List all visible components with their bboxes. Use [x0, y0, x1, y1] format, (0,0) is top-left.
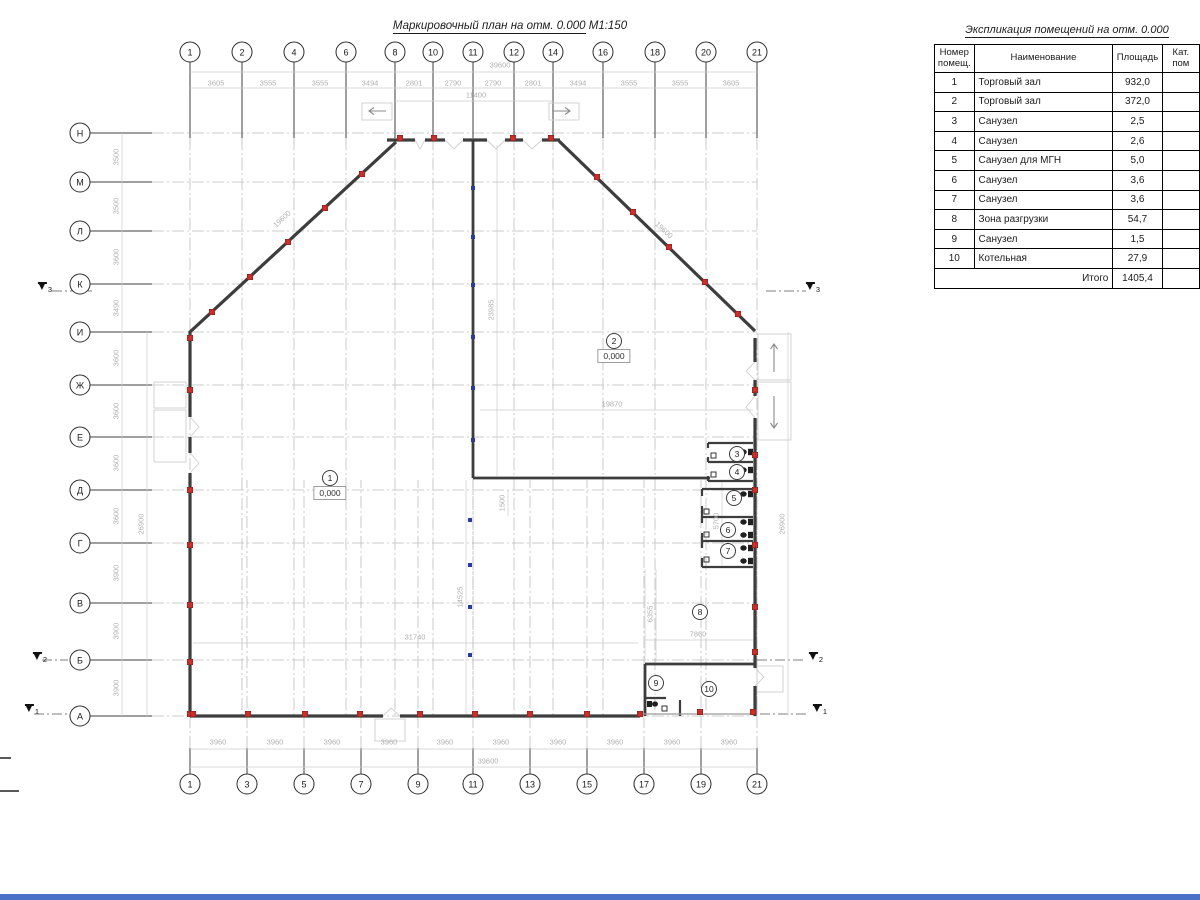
section-mark-label: 3: [816, 285, 820, 294]
room-number-4: 4: [729, 464, 745, 480]
red-wall-marker: [753, 488, 758, 493]
dim-label: 19600: [271, 209, 292, 230]
axis-bubble-left-Н: Н: [70, 123, 91, 144]
sheet-bottom-accent-bar: [0, 894, 1200, 900]
dim-label: 3605: [208, 79, 225, 88]
room-number-7: 7: [720, 543, 736, 559]
cell-c-cat: [1162, 229, 1199, 249]
section-flag-icon: [809, 652, 818, 661]
dim-label: 3555: [672, 79, 689, 88]
dim-label: 39600: [478, 757, 499, 766]
red-wall-marker: [303, 712, 308, 717]
table-row-room-6: 6Санузел3,6: [935, 170, 1200, 190]
axis-bubble-left-Г: Г: [70, 533, 91, 554]
section-flag-icon: [33, 652, 42, 661]
dim-label: 3600: [112, 249, 121, 266]
cell-c-num: 1: [935, 73, 975, 93]
dim-label: 26900: [778, 514, 787, 535]
cell-c-area: 5,0: [1113, 151, 1162, 171]
room-number-6: 6: [720, 522, 736, 538]
red-wall-marker: [188, 336, 193, 341]
room-number-2: 2: [606, 333, 622, 349]
dim-label: 3494: [570, 79, 587, 88]
blue-column-marker: [468, 518, 472, 522]
axis-bubble-top-4: 4: [284, 42, 305, 63]
dim-label: 7860: [690, 630, 707, 639]
cell-c-cat: [1162, 73, 1199, 93]
axis-bubble-left-Е: Е: [70, 427, 91, 448]
red-wall-marker: [638, 712, 643, 717]
dim-label: 3960: [664, 738, 681, 747]
dim-label: 3600: [112, 455, 121, 472]
cell-c-cat: [1162, 92, 1199, 112]
table-row-room-8: 8Зона разгрузки54,7: [935, 210, 1200, 230]
section-flag-icon: [25, 704, 34, 713]
cell-c-name: Санузел: [974, 190, 1113, 210]
cell-c-name: Санузел для МГН: [974, 151, 1113, 171]
cell-c-num: 10: [935, 249, 975, 269]
cell-c-name: Зона разгрузки: [974, 210, 1113, 230]
table-row-room-10: 10Котельная27,9: [935, 249, 1200, 269]
dim-label: 19870: [602, 400, 623, 409]
axis-bubble-left-А: А: [70, 706, 91, 727]
dim-label: 3960: [607, 738, 624, 747]
col-header-name: Наименование: [974, 45, 1113, 73]
dim-label: 3600: [112, 350, 121, 367]
axis-bubble-bottom-3: 3: [237, 774, 258, 795]
room-number-8: 8: [692, 604, 708, 620]
axis-bubble-top-14: 14: [543, 42, 564, 63]
cell-c-num: 2: [935, 92, 975, 112]
drawing-scale: М1:150: [589, 20, 627, 32]
dim-label: 31740: [405, 633, 426, 642]
axis-bubble-top-11: 11: [463, 42, 484, 63]
blue-column-marker: [468, 653, 472, 657]
dim-label: 3600: [112, 403, 121, 420]
dim-label: 3960: [267, 738, 284, 747]
dim-label: 3960: [210, 738, 227, 747]
dim-label: 5700: [712, 513, 721, 530]
axis-bubble-bottom-17: 17: [634, 774, 655, 795]
dim-label: 3900: [112, 565, 121, 582]
room-number-5: 5: [726, 490, 742, 506]
red-wall-marker: [753, 543, 758, 548]
red-wall-marker: [667, 245, 672, 250]
blue-column-marker: [471, 386, 475, 390]
axis-bubble-left-В: В: [70, 593, 91, 614]
red-wall-marker: [188, 660, 193, 665]
cell-c-area: 2,5: [1113, 112, 1162, 132]
axis-bubble-top-8: 8: [385, 42, 406, 63]
level-mark-room-2: 0,000: [597, 349, 630, 363]
dim-label: 2801: [406, 79, 423, 88]
dim-label: 3900: [112, 623, 121, 640]
cell-c-cat: [1162, 249, 1199, 269]
red-wall-marker: [549, 136, 554, 141]
dim-label: 11400: [466, 91, 486, 100]
dim-label: 19600: [653, 220, 674, 241]
cell-c-area: 2,6: [1113, 131, 1162, 151]
cell-c-cat: [1162, 131, 1199, 151]
section-mark-label: 1: [823, 707, 827, 716]
section-mark-3: 3: [806, 282, 820, 294]
cell-c-cat: [1162, 170, 1199, 190]
dim-label: 3494: [362, 79, 379, 88]
room-number-3: 3: [729, 446, 745, 462]
red-wall-marker: [751, 710, 756, 715]
axis-bubble-left-К: К: [70, 274, 91, 295]
red-wall-marker: [210, 310, 215, 315]
red-wall-marker: [753, 650, 758, 655]
red-wall-marker: [432, 136, 437, 141]
col-header-area: Площадь: [1113, 45, 1162, 73]
dim-label: 23985: [487, 300, 496, 321]
axis-bubble-bottom-9: 9: [408, 774, 429, 795]
cell-c-area: 3,6: [1113, 170, 1162, 190]
axis-bubble-top-6: 6: [336, 42, 357, 63]
total-label: Итого: [935, 268, 1113, 288]
blue-column-marker: [468, 563, 472, 567]
red-wall-marker: [246, 712, 251, 717]
blue-column-marker: [471, 438, 475, 442]
red-wall-marker: [188, 388, 193, 393]
table-row-room-7: 7Санузел3,6: [935, 190, 1200, 210]
cell-c-cat: [1162, 112, 1199, 132]
blue-column-marker: [468, 605, 472, 609]
dim-label: 3500: [112, 198, 121, 215]
blue-column-marker: [471, 335, 475, 339]
red-wall-marker: [248, 275, 253, 280]
table-row-room-4: 4Санузел2,6: [935, 131, 1200, 151]
red-wall-marker: [188, 543, 193, 548]
red-wall-marker: [703, 280, 708, 285]
red-wall-marker: [595, 175, 600, 180]
blue-column-marker: [471, 283, 475, 287]
dim-label: 3605: [723, 79, 740, 88]
axis-bubble-left-Ж: Ж: [70, 375, 91, 396]
red-wall-marker: [528, 712, 533, 717]
dim-label: 3500: [112, 149, 121, 166]
dim-label: 3555: [621, 79, 638, 88]
section-mark-1: 1: [25, 704, 39, 716]
table-row-room-3: 3Санузел2,5: [935, 112, 1200, 132]
table-row-room-2: 2Торговый зал372,0: [935, 92, 1200, 112]
axis-bubble-left-Б: Б: [70, 650, 91, 671]
dim-label: 3555: [260, 79, 277, 88]
room-schedule-table: Номер помещ. Наименование Площадь Кат. п…: [934, 44, 1200, 289]
cell-c-num: 6: [935, 170, 975, 190]
section-mark-2: 2: [809, 652, 823, 664]
axis-bubble-top-10: 10: [423, 42, 444, 63]
room-number-10: 10: [701, 681, 717, 697]
cell-c-area: 54,7: [1113, 210, 1162, 230]
dim-label: 2790: [485, 79, 502, 88]
red-wall-marker: [698, 710, 703, 715]
axis-bubble-left-Д: Д: [70, 480, 91, 501]
dim-label: 6355: [646, 606, 655, 623]
col-header-number: Номер помещ.: [935, 45, 975, 73]
axis-bubble-bottom-13: 13: [520, 774, 541, 795]
axis-bubble-left-И: И: [70, 322, 91, 343]
axis-bubble-top-16: 16: [593, 42, 614, 63]
axis-bubble-top-1: 1: [180, 42, 201, 63]
dim-label: 3960: [493, 738, 510, 747]
section-mark-label: 2: [43, 655, 47, 664]
dim-label: 26900: [137, 514, 146, 535]
dim-label: 3490: [112, 300, 121, 317]
axis-bubble-left-Л: Л: [70, 221, 91, 242]
dim-label: 3555: [312, 79, 329, 88]
section-mark-1: 1: [813, 704, 827, 716]
col-header-category: Кат. пом: [1162, 45, 1199, 73]
drawing-title: Маркировочный план на отм. 0.000 М1:150: [330, 20, 690, 32]
cell-c-area: 3,6: [1113, 190, 1162, 210]
level-mark-room-1: 0,000: [313, 486, 346, 500]
cell-c-num: 5: [935, 151, 975, 171]
red-wall-marker: [753, 388, 758, 393]
section-mark-3: 3: [38, 282, 52, 294]
axis-bubble-bottom-7: 7: [351, 774, 372, 795]
section-flag-icon: [806, 282, 815, 291]
axis-bubble-bottom-19: 19: [691, 774, 712, 795]
axis-bubble-bottom-1: 1: [180, 774, 201, 795]
section-mark-label: 1: [35, 707, 39, 716]
axis-bubble-left-М: М: [70, 172, 91, 193]
cell-c-name: Санузел: [974, 131, 1113, 151]
total-value: 1405,4: [1113, 268, 1162, 288]
cell-c-name: Санузел: [974, 112, 1113, 132]
cell-c-name: Торговый зал: [974, 73, 1113, 93]
cell-c-num: 9: [935, 229, 975, 249]
red-wall-marker: [753, 453, 758, 458]
blue-column-marker: [471, 235, 475, 239]
table-row-room-5: 5Санузел для МГН5,0: [935, 151, 1200, 171]
dim-label: 3960: [437, 738, 454, 747]
red-wall-marker: [736, 312, 741, 317]
cell-c-name: Санузел: [974, 170, 1113, 190]
axis-bubble-top-20: 20: [696, 42, 717, 63]
red-wall-marker: [191, 712, 196, 717]
axis-bubble-top-18: 18: [645, 42, 666, 63]
red-wall-marker: [753, 605, 758, 610]
cell-c-name: Котельная: [974, 249, 1113, 269]
red-wall-marker: [473, 712, 478, 717]
table-total-row: Итого 1405,4: [935, 268, 1200, 288]
drawing-sheet: Маркировочный план на отм. 0.000 М1:150 …: [0, 0, 1200, 900]
cell-c-num: 8: [935, 210, 975, 230]
section-mark-label: 3: [48, 285, 52, 294]
section-flag-icon: [38, 282, 47, 291]
red-wall-marker: [188, 488, 193, 493]
red-wall-marker: [418, 712, 423, 717]
dim-label: 2801: [525, 79, 542, 88]
red-wall-marker: [360, 172, 365, 177]
red-wall-marker: [631, 210, 636, 215]
cell-c-cat: [1162, 151, 1199, 171]
dim-label: 3960: [550, 738, 567, 747]
table-row-room-9: 9Санузел1,5: [935, 229, 1200, 249]
axis-bubble-top-2: 2: [232, 42, 253, 63]
axis-bubble-bottom-15: 15: [577, 774, 598, 795]
cell-c-area: 27,9: [1113, 249, 1162, 269]
axis-bubble-bottom-11: 11: [463, 774, 484, 795]
cell-c-area: 1,5: [1113, 229, 1162, 249]
axis-bubble-top-12: 12: [504, 42, 525, 63]
dim-label: 39600: [490, 61, 511, 70]
cell-c-name: Торговый зал: [974, 92, 1113, 112]
drawing-title-text: Маркировочный план на отм. 0.000: [393, 20, 586, 34]
schedule-title: Экспликация помещений на отм. 0.000: [934, 24, 1200, 36]
table-header-row: Номер помещ. Наименование Площадь Кат. п…: [935, 45, 1200, 73]
section-mark-2: 2: [33, 652, 47, 664]
dim-label: 3960: [324, 738, 341, 747]
room-number-1: 1: [322, 470, 338, 486]
room-number-9: 9: [648, 675, 664, 691]
axis-bubble-top-21: 21: [747, 42, 768, 63]
cell-c-num: 4: [935, 131, 975, 151]
red-wall-marker: [323, 206, 328, 211]
dim-label: 3900: [112, 680, 121, 697]
red-wall-marker: [286, 240, 291, 245]
axis-bubble-bottom-5: 5: [294, 774, 315, 795]
red-wall-marker: [585, 712, 590, 717]
cell-c-area: 932,0: [1113, 73, 1162, 93]
red-wall-marker: [188, 603, 193, 608]
cell-c-num: 3: [935, 112, 975, 132]
table-row-room-1: 1Торговый зал932,0: [935, 73, 1200, 93]
cell-c-cat: [1162, 210, 1199, 230]
section-flag-icon: [813, 704, 822, 713]
dim-label: 3960: [721, 738, 738, 747]
dim-label: 1500: [498, 495, 507, 512]
red-wall-marker: [398, 136, 403, 141]
dim-label: 3600: [112, 508, 121, 525]
cell-c-cat: [1162, 190, 1199, 210]
axis-bubble-bottom-21: 21: [747, 774, 768, 795]
cell-c-area: 372,0: [1113, 92, 1162, 112]
dim-label: 14525: [456, 587, 465, 608]
dim-label: 3960: [381, 738, 398, 747]
cell-c-name: Санузел: [974, 229, 1113, 249]
red-wall-marker: [358, 712, 363, 717]
dim-label: 2790: [445, 79, 462, 88]
red-wall-marker: [511, 136, 516, 141]
cell-c-num: 7: [935, 190, 975, 210]
section-mark-label: 2: [819, 655, 823, 664]
blue-column-marker: [471, 186, 475, 190]
